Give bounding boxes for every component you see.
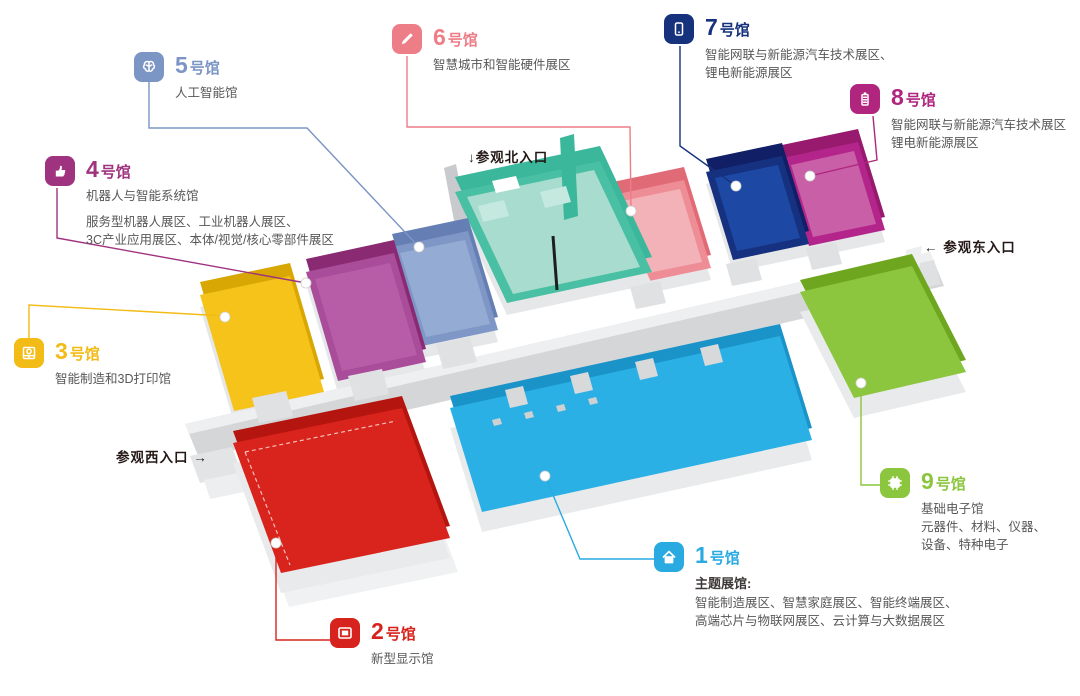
- west-entrance-label: 参观西入口 →: [116, 446, 208, 466]
- hall-9-title: 9号馆: [921, 470, 1046, 493]
- hall-8-label: 8号馆 智能网联与新能源汽车技术展区 锂电新能源展区: [850, 84, 1066, 152]
- exhibition-floor-plan: ↓参观北入口 ← 参观东入口 参观西入口 → 5号馆 人工智能馆 6号馆 智慧城…: [0, 0, 1080, 696]
- hall-4-label: 4号馆 机器人与智能系统馆 服务型机器人展区、工业机器人展区、 3C产业应用展区…: [45, 156, 334, 249]
- hall-4-desc-2: 3C产业应用展区、本体/视觉/核心零部件展区: [86, 231, 334, 249]
- hall-7-desc-1: 智能网联与新能源汽车技术展区、: [705, 46, 893, 64]
- down-arrow-icon: ↓: [468, 150, 476, 165]
- hall-9-shape: [800, 246, 966, 418]
- printer-icon: [14, 338, 44, 368]
- leader-hall-3: [29, 305, 225, 340]
- display-icon: [330, 618, 360, 648]
- hall-5-label: 5号馆 人工智能馆: [134, 52, 238, 102]
- phone-icon: [664, 14, 694, 44]
- hall-3-label: 3号馆 智能制造和3D打印馆: [14, 338, 171, 388]
- hall-4-title: 4号馆: [86, 158, 334, 181]
- brain-icon: [134, 52, 164, 82]
- hall-2-desc: 新型显示馆: [371, 650, 434, 668]
- hall-6-title: 6号馆: [433, 26, 571, 49]
- hall-8-title: 8号馆: [891, 86, 1066, 109]
- hall-1-desc-1: 智能制造展区、智慧家庭展区、智能终端展区、: [695, 594, 958, 612]
- hall-9-desc-1: 基础电子馆: [921, 500, 1046, 518]
- east-entrance-label: ← 参观东入口: [924, 236, 1016, 256]
- pen-icon: [392, 24, 422, 54]
- home-icon: [654, 542, 684, 572]
- hall-7-label: 7号馆 智能网联与新能源汽车技术展区、 锂电新能源展区: [664, 14, 893, 82]
- hall-6-desc: 智慧城市和智能硬件展区: [433, 56, 571, 74]
- hall-2-title: 2号馆: [371, 620, 434, 643]
- hall-1-subtitle: 主题展馆:: [695, 574, 958, 594]
- hall-5-title: 5号馆: [175, 54, 238, 77]
- hall-4-subtitle: 机器人与智能系统馆: [86, 188, 334, 206]
- hall-2-label: 2号馆 新型显示馆: [330, 618, 434, 668]
- battery-icon: [850, 84, 880, 114]
- left-arrow-icon: ←: [924, 240, 939, 255]
- hall-5-desc: 人工智能馆: [175, 84, 238, 102]
- hall-8-desc-1: 智能网联与新能源汽车技术展区: [891, 116, 1066, 134]
- right-arrow-icon: →: [193, 450, 208, 465]
- hall-1-desc-2: 高端芯片与物联网展区、云计算与大数据展区: [695, 612, 958, 630]
- hall-9-desc-3: 设备、特种电子: [921, 536, 1046, 554]
- hall-7-desc-2: 锂电新能源展区: [705, 64, 893, 82]
- hand-icon: [45, 156, 75, 186]
- hall-8-desc-2: 锂电新能源展区: [891, 134, 1066, 152]
- hall-9-label: 9号馆 基础电子馆 元器件、材料、仪器、 设备、特种电子: [880, 468, 1046, 554]
- hall-9-desc-2: 元器件、材料、仪器、: [921, 518, 1046, 536]
- hall-2-shape: [233, 396, 458, 607]
- chip-icon: [880, 468, 910, 498]
- hall-7-title: 7号馆: [705, 16, 893, 39]
- north-entrance-label: ↓参观北入口: [468, 146, 548, 166]
- hall-3-desc: 智能制造和3D打印馆: [55, 370, 171, 388]
- hall-3-title: 3号馆: [55, 340, 171, 363]
- hall-1-label: 1号馆 主题展馆: 智能制造展区、智慧家庭展区、智能终端展区、 高端芯片与物联网…: [654, 542, 958, 630]
- hall-4-desc-1: 服务型机器人展区、工业机器人展区、: [86, 213, 334, 231]
- hall-6-label: 6号馆 智慧城市和智能硬件展区: [392, 24, 571, 74]
